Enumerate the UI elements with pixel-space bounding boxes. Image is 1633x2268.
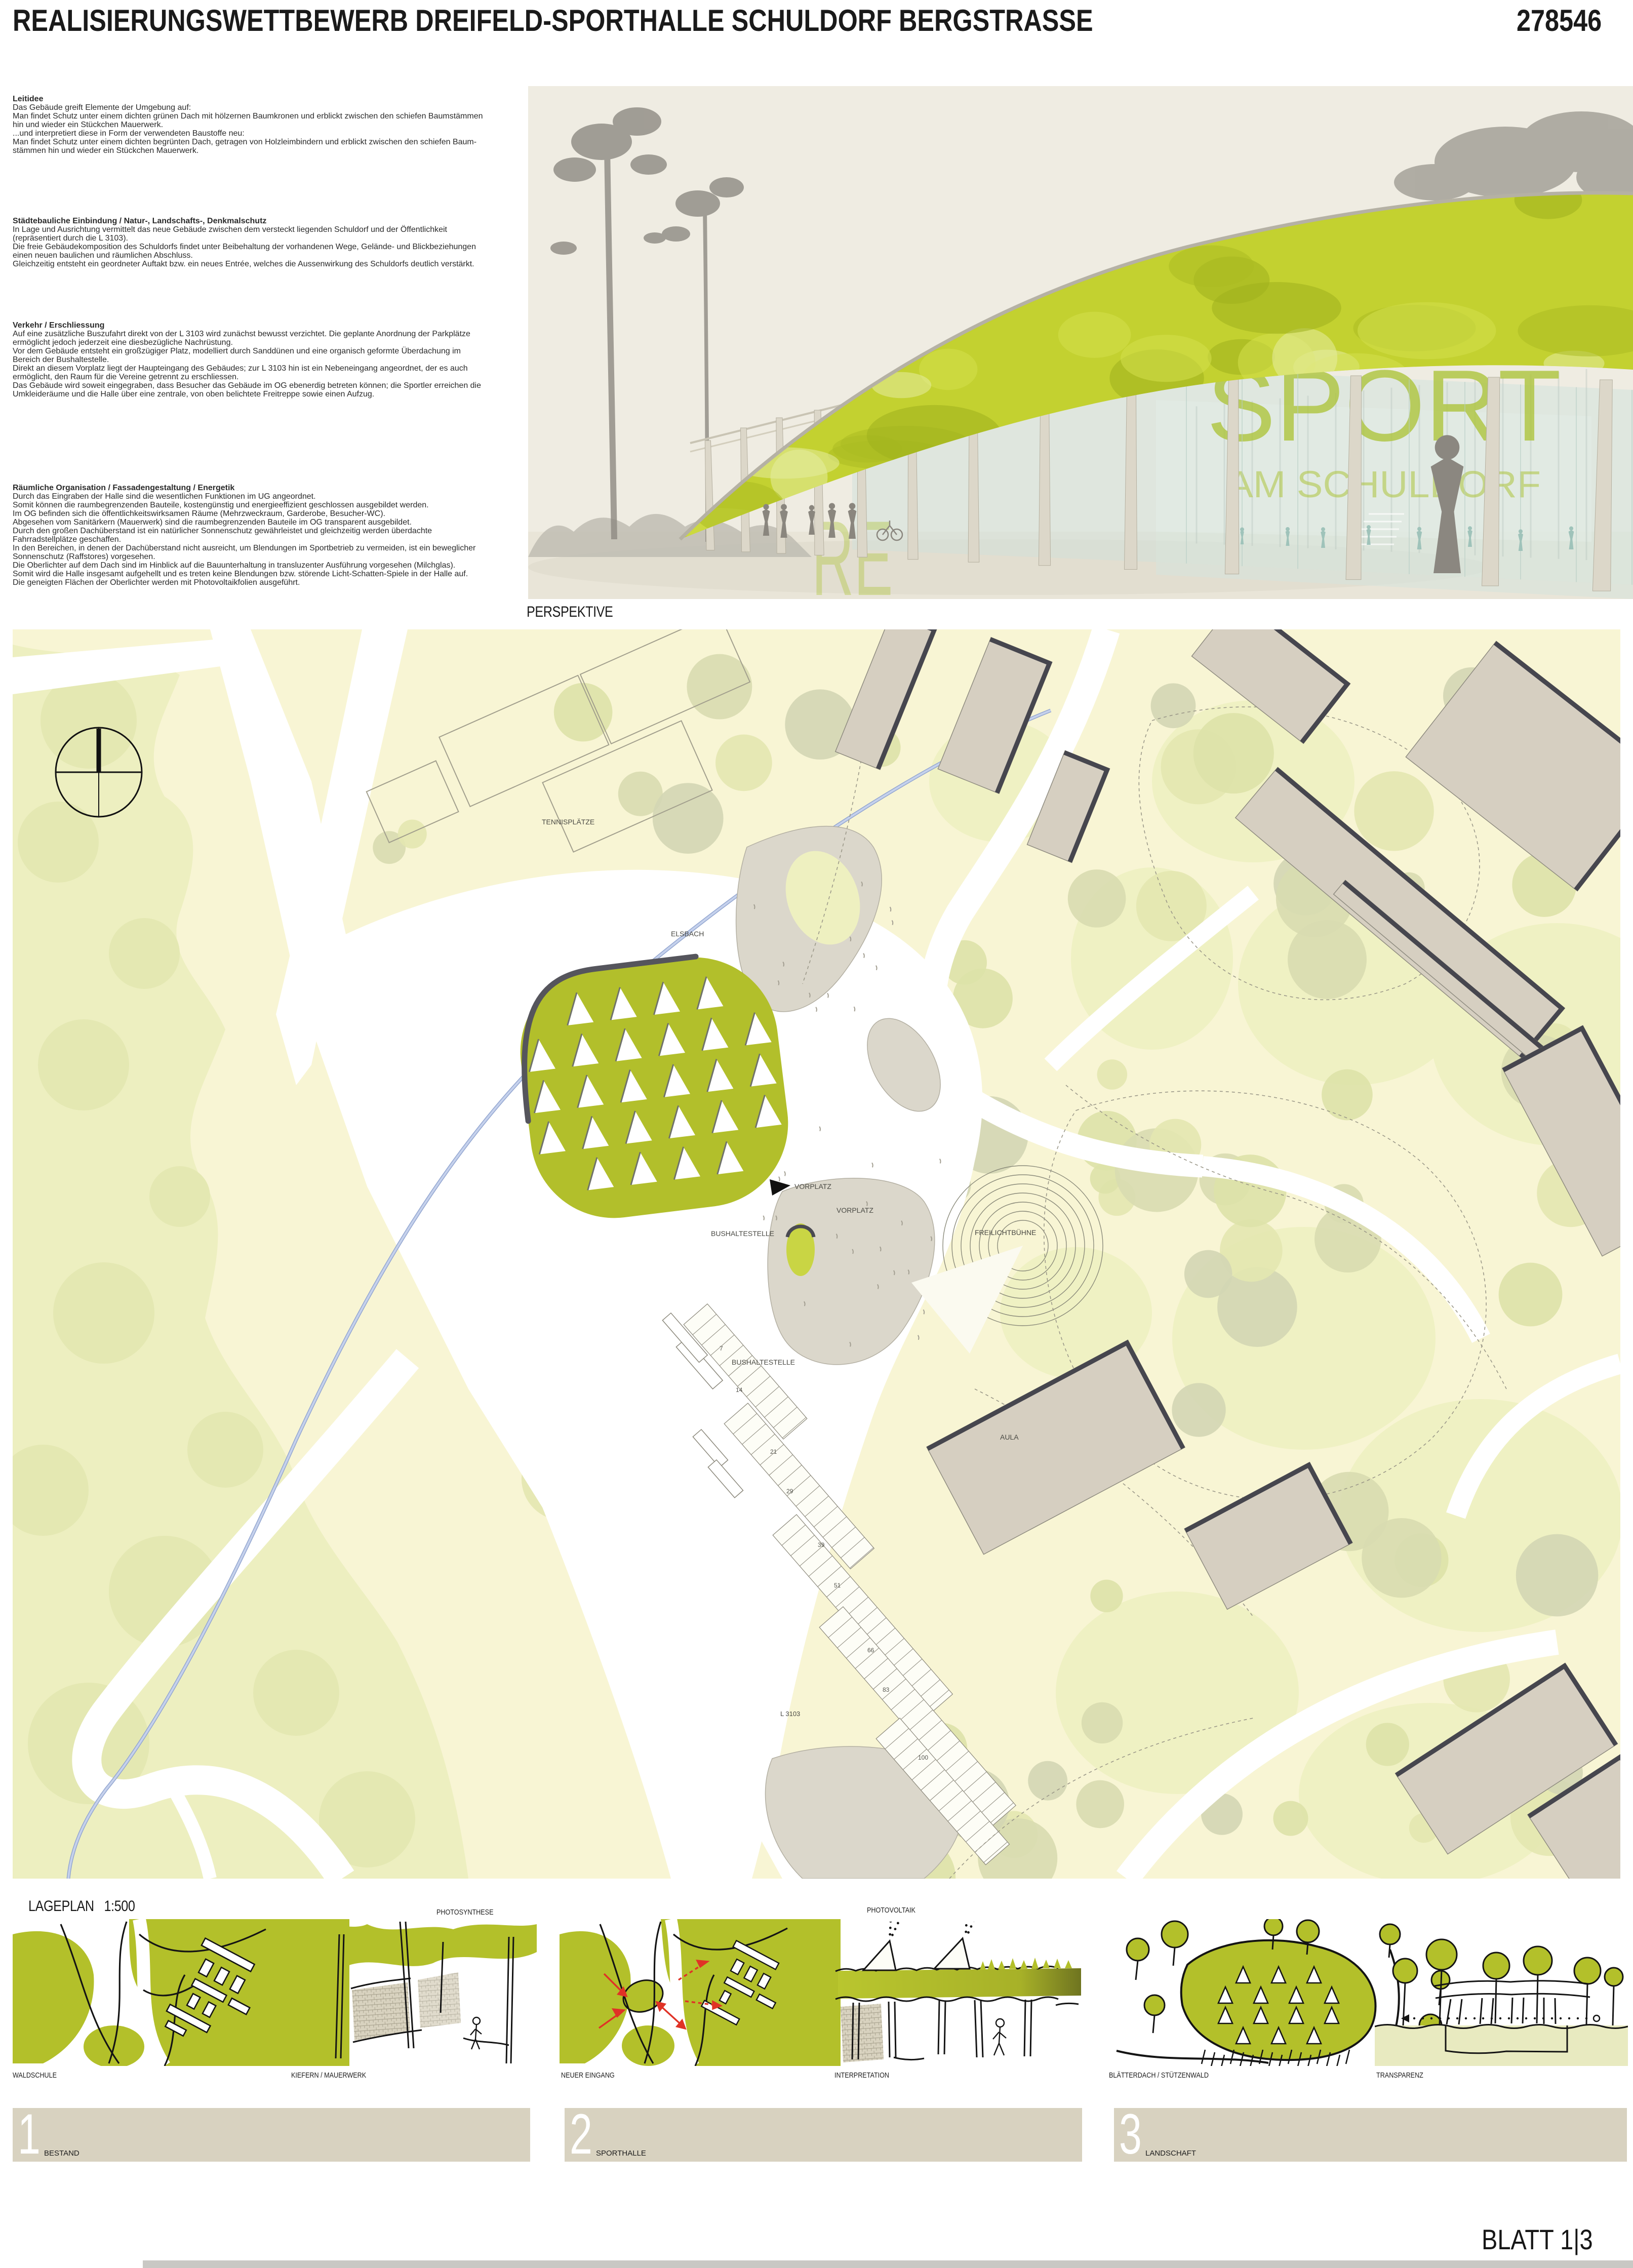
sun-ray-dots — [889, 1922, 983, 1936]
section-number: 1 — [18, 2106, 41, 2163]
svg-text:21: 21 — [770, 1448, 777, 1455]
section-body: Durch das Eingraben der Halle sind die w… — [13, 492, 549, 587]
section-heading: Verkehr / Erschliessung — [13, 321, 549, 330]
map-label-vorplatz-1: VORPLATZ — [794, 1182, 831, 1190]
sketch-top-label-photovoltaik: PHOTOVOLTAIK — [867, 1906, 925, 1915]
section-number: 3 — [1119, 2106, 1142, 2163]
sketch-neuer-eingang — [560, 1919, 841, 2068]
sketch-kiefern-mauerwerk — [291, 1922, 537, 2068]
sketch-caption-waldschule: WALDSCHULE — [13, 2071, 65, 2080]
map-label-l3103: L 3103 — [780, 1710, 800, 1718]
map-label-vorplatz-2: VORPLATZ — [837, 1206, 873, 1214]
svg-text:51: 51 — [834, 1582, 841, 1589]
map-label-elsbach: ELSBACH — [671, 930, 704, 938]
section-verkehr: Verkehr / Erschliessung Auf eine zusätzl… — [13, 321, 549, 399]
sketch-top-label-photosynthese: PHOTOSYNTHESE — [436, 1908, 504, 1917]
competition-number: 278546 — [1517, 3, 1618, 38]
section-bar-bestand: 1 BESTAND — [13, 2108, 530, 2162]
section-label: BESTAND — [44, 2149, 79, 2158]
section-body: In Lage und Ausrichtung vermittelt das n… — [13, 225, 549, 268]
page-title: REALISIERUNGSWETTBEWERB DREIFELD-SPORTHA… — [13, 3, 1299, 38]
svg-text:7: 7 — [720, 1345, 723, 1352]
svg-text:100: 100 — [918, 1754, 928, 1761]
section-number: 2 — [570, 2106, 592, 2163]
section-label: SPORTHALLE — [596, 2149, 646, 2158]
perspective-caption: PERSPEKTIVE — [527, 604, 629, 621]
map-label-bushaltestelle-2: BUSHALTESTELLE — [732, 1358, 795, 1366]
north-compass-icon — [56, 728, 142, 817]
section-heading: Räumliche Organisation / Fassadengestalt… — [13, 484, 549, 492]
svg-text:66: 66 — [867, 1647, 874, 1654]
competition-board: REALISIERUNGSWETTBEWERB DREIFELD-SPORTHA… — [0, 0, 1633, 2268]
sketch-person — [470, 2017, 482, 2049]
sketch-caption-kiefern: KIEFERN / MAUERWERK — [291, 2071, 380, 2080]
sketch-transparenz — [1375, 1924, 1628, 2068]
svg-text:29: 29 — [786, 1488, 793, 1495]
svg-text:39: 39 — [818, 1541, 825, 1548]
sketch-caption-interpretation: INTERPRETATION — [834, 2071, 900, 2080]
section-label: LANDSCHAFT — [1145, 2149, 1196, 2158]
section-heading: Städtebauliche Einbindung / Natur-, Land… — [13, 217, 549, 225]
map-label-tennis: TENNISPLÄTZE — [542, 818, 594, 826]
section-body: Auf eine zusätzliche Buszufahrt direkt v… — [13, 330, 549, 399]
perspective-figure: SPORT AM SCHULDORF RE — [528, 86, 1633, 599]
sheet-number: BLATT 1|3 — [1482, 2223, 1614, 2256]
section-staedtebau: Städtebauliche Einbindung / Natur-, Land… — [13, 217, 549, 268]
svg-text:14: 14 — [736, 1386, 743, 1394]
svg-text:83: 83 — [883, 1686, 890, 1693]
sport-hall-footprint — [511, 948, 798, 1227]
siteplan-figure: ELSBACH TENNISPLÄTZE VORPLATZ VORPLATZ B… — [13, 629, 1620, 1879]
roof-grass — [980, 1958, 1072, 1970]
sketch-interpretation — [833, 1922, 1086, 2068]
section-raumorganisation: Räumliche Organisation / Fassadengestalt… — [13, 484, 549, 587]
bottom-strip — [143, 2260, 1633, 2268]
sightline — [1401, 2014, 1600, 2022]
map-label-bushaltestelle-1: BUSHALTESTELLE — [711, 1229, 774, 1238]
section-leitidee: Leitidee Das Gebäude greift Elemente der… — [13, 95, 549, 155]
section-bar-landschaft: 3 LANDSCHAFT — [1114, 2108, 1627, 2162]
section-bar-sporthalle: 2 SPORTHALLE — [565, 2108, 1082, 2162]
sketch-person — [993, 2019, 1006, 2055]
sketch-trees — [1393, 1939, 1623, 1986]
map-label-freilichtbuehne: FREILICHTBÜHNE — [975, 1228, 1036, 1237]
sketch-caption-blaetterdach: BLÄTTERDACH / STÜTZENWALD — [1109, 2071, 1227, 2080]
sketch-caption-transparenz: TRANSPARENZ — [1376, 2071, 1432, 2080]
section-heading: Leitidee — [13, 95, 549, 103]
sketch-caption-neuer-eingang: NEUER EINGANG — [561, 2071, 625, 2080]
section-body: Das Gebäude greift Elemente der Umgebung… — [13, 103, 549, 155]
map-label-aula: AULA — [1000, 1433, 1019, 1441]
